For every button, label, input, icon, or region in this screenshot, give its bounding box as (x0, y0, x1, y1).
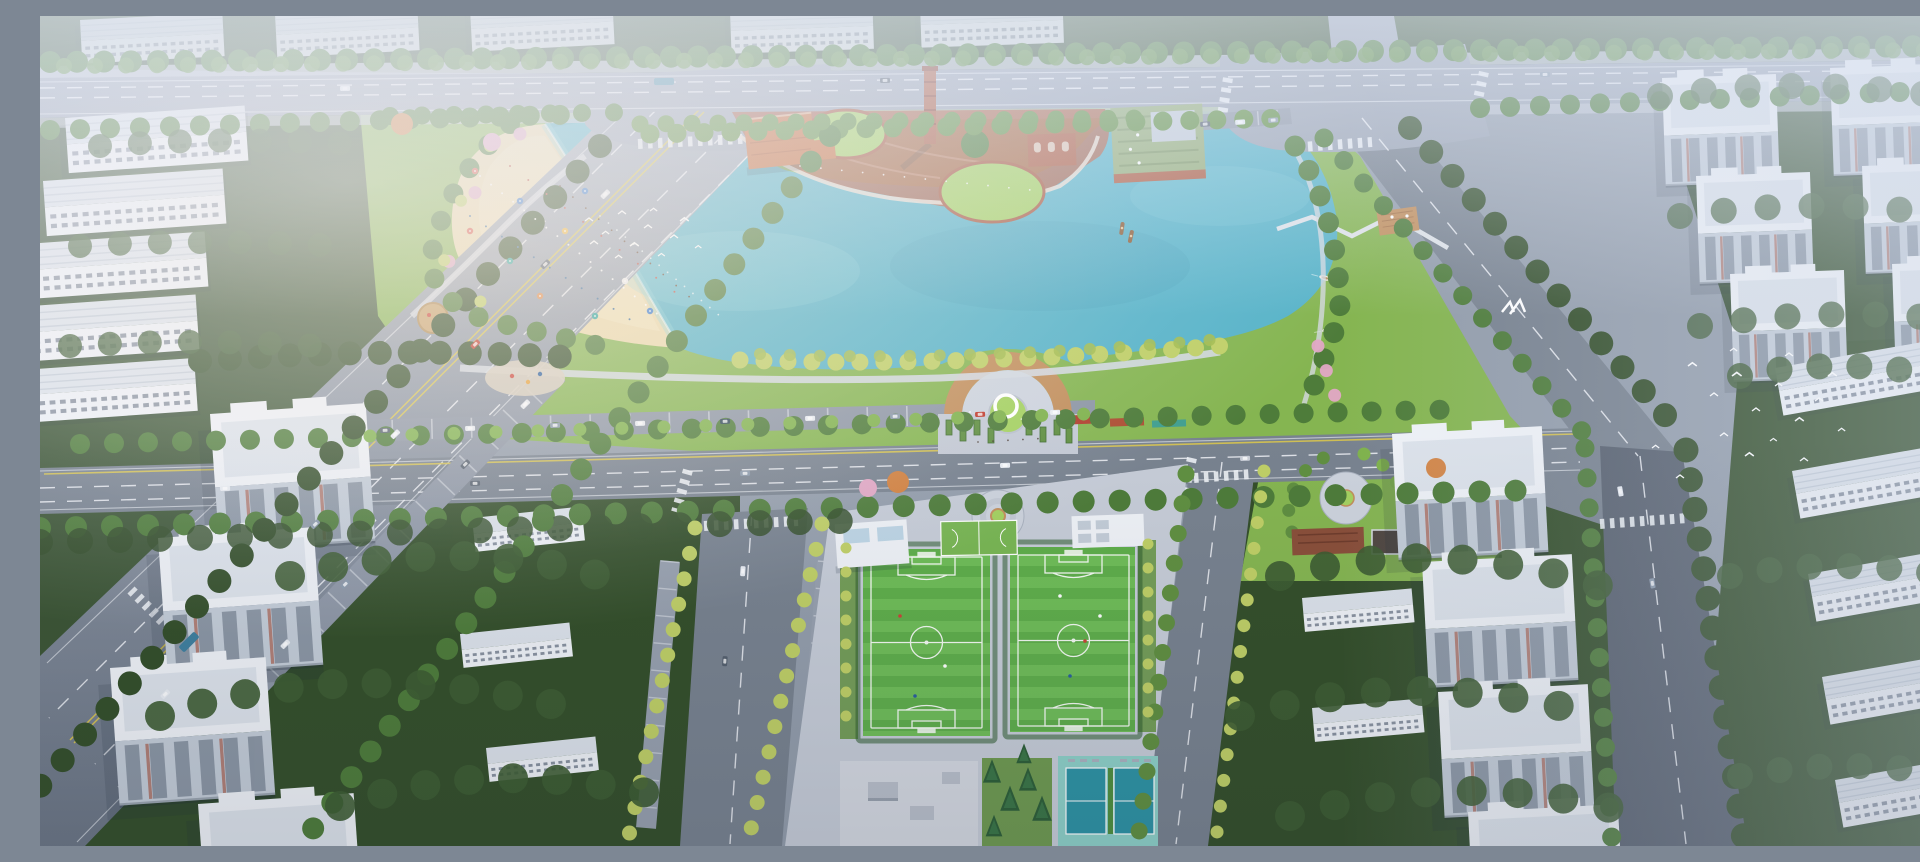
bottom-vignette (40, 16, 1920, 846)
aerial-render: Aerial bird's-eye rendering of a lakesid… (40, 16, 1920, 846)
atmosphere (40, 16, 1920, 846)
aerial-render-canvas: Aerial bird's-eye rendering of a lakesid… (40, 16, 1920, 846)
